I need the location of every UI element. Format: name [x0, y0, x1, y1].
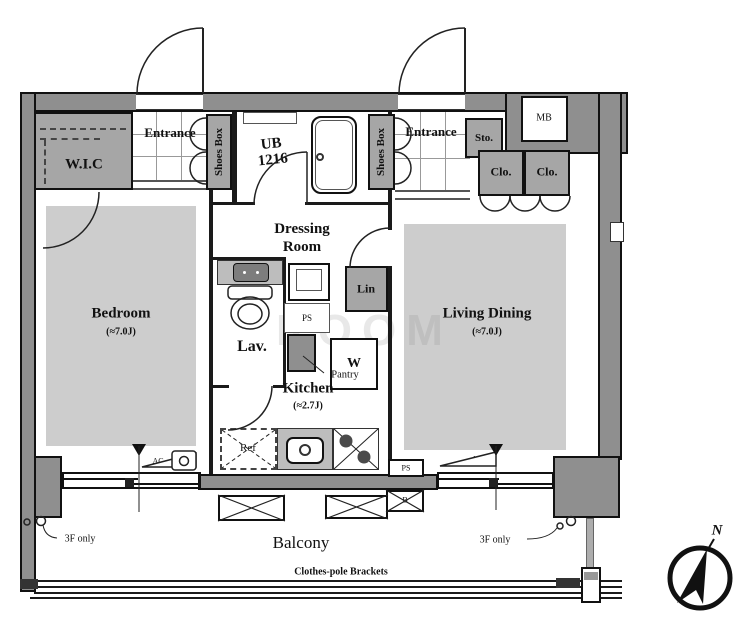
bedroom-window	[62, 472, 201, 489]
lav-basin-dot	[256, 271, 259, 274]
tile-line	[181, 112, 182, 180]
window-end	[552, 474, 554, 487]
balcony-rail	[30, 597, 622, 599]
kitchen-size: (≈2.7J)	[293, 401, 323, 412]
toilet-tank	[228, 286, 272, 299]
wic-rod-dashed-2	[40, 138, 100, 140]
entrance-left-opening	[136, 94, 203, 110]
dressing-top-wall-right	[305, 202, 392, 205]
window-end	[437, 474, 439, 487]
linen-label: Lin	[357, 282, 375, 297]
ac-right-label: AC	[471, 455, 482, 464]
rail-tick-right	[556, 578, 580, 588]
entrance-left-label: Entrance	[144, 125, 195, 141]
compass-needle	[677, 549, 707, 604]
window-overlap	[489, 478, 498, 487]
wic-rod-dashed	[40, 128, 126, 130]
lav-basin	[233, 263, 269, 282]
living-dining-label: Living Dining	[443, 306, 532, 323]
pipe-space-mid-label: PS	[302, 313, 312, 323]
pantry-box	[287, 334, 316, 372]
tile-line	[156, 112, 157, 180]
ac-left-wedge	[142, 453, 196, 467]
shoes-box-left-label: Shoes Box	[213, 128, 225, 176]
bedroom-size: (≈7.0J)	[106, 327, 136, 338]
entrance-right-label: Entrance	[405, 124, 456, 140]
floor-plan: ROOM MB W.I.C Entrance Shoes Box Shoes B…	[0, 0, 750, 634]
lav-label: Lav.	[237, 338, 267, 356]
left-wall-bump	[34, 456, 62, 518]
storage-box-label: Sto.	[475, 132, 493, 144]
ub-shelf	[243, 112, 297, 124]
rail-end-box-fill	[584, 572, 598, 580]
third-floor-right-label: 3F only	[480, 535, 511, 546]
entrance-left-step	[133, 180, 206, 182]
third-floor-right-leader	[527, 528, 557, 539]
closet-right-label: Clo.	[537, 165, 558, 180]
toilet-bowl	[231, 297, 269, 329]
balcony-unit-box	[325, 495, 388, 519]
balcony-label: Balcony	[273, 533, 330, 553]
entrance-right-opening	[398, 94, 465, 110]
tile-line	[395, 158, 470, 159]
ac-left-label: AC	[152, 457, 163, 466]
tile-line	[133, 156, 206, 157]
compass-circle	[670, 548, 730, 608]
pillar-drain-line	[586, 518, 594, 568]
closet-door-scallop	[480, 196, 510, 211]
wic-closet	[34, 112, 133, 190]
pantry-label: Pantry	[331, 370, 358, 381]
window-overlap	[125, 478, 134, 487]
bathtub-faucet	[316, 153, 324, 161]
closet-door-scallop	[540, 196, 570, 211]
lav-bottom-wall-left	[211, 385, 229, 388]
meter-box-label: MB	[536, 113, 552, 124]
dressing-room-label: Dressing Room	[252, 220, 352, 256]
living-window	[437, 472, 554, 489]
bedroom-label: Bedroom	[92, 306, 151, 323]
vanity-basin	[296, 269, 322, 291]
b-unit-label: B	[402, 496, 407, 505]
right-wall	[598, 92, 622, 460]
entrance-left-step	[133, 188, 206, 190]
shoes-box-right-bifold	[395, 152, 411, 184]
stove-box	[333, 428, 379, 470]
ub-label-block: UB 1216	[246, 134, 297, 171]
balcony-rail	[34, 580, 622, 582]
third-floor-left-label: 3F only	[65, 534, 96, 545]
entrance-right-step	[395, 198, 470, 200]
closet-door-scallop	[510, 196, 540, 211]
shoesbox-ub-wall	[232, 112, 237, 205]
ac-right-wedge	[440, 452, 496, 466]
dressing-door-arc	[350, 228, 390, 268]
entrance-left-door-arc	[137, 28, 203, 94]
compass-north-label: N	[712, 523, 723, 540]
ac-left-drain	[180, 457, 189, 466]
kitchen-label: Kitchen	[283, 381, 334, 398]
window-panel	[492, 483, 554, 485]
entrance-right-door-arc	[399, 28, 465, 94]
rail-tick-left	[20, 579, 38, 589]
lav-door-arc	[228, 386, 272, 430]
living-dining-size: (≈7.0J)	[472, 327, 502, 338]
wic-rod-dashed-vert	[44, 140, 46, 184]
entrance-right-step	[395, 190, 470, 192]
window-end	[199, 474, 201, 487]
balcony-rail	[34, 592, 622, 594]
toilet-bowl-inner	[238, 304, 262, 324]
core-left-wall	[209, 188, 213, 474]
shoes-box-right-label: Shoes Box	[375, 128, 387, 176]
clothes-pole-label: Clothes-pole Brackets	[294, 567, 388, 578]
lav-basin-dot	[243, 271, 246, 274]
dressing-line2: Room	[252, 238, 352, 256]
refrigerator-label: Ref	[240, 442, 256, 454]
core-right-wall-lower	[388, 266, 392, 474]
dressing-line1: Dressing	[252, 220, 352, 238]
third-floor-left-leader	[43, 525, 57, 538]
ac-left-box	[172, 451, 196, 470]
dressing-top-wall-left	[209, 202, 255, 205]
compass-n-tick	[707, 539, 714, 551]
balcony-rail	[34, 586, 622, 588]
pipe-space-bottom-label: PS	[402, 464, 411, 473]
balcony-unit-box	[218, 495, 285, 521]
window-panel	[128, 483, 201, 485]
sink-drain	[299, 444, 311, 456]
right-wall-notch	[610, 222, 624, 242]
closet-left-label: Clo.	[491, 165, 512, 180]
wic-label: W.I.C	[65, 157, 103, 174]
bottom-right-pillar	[553, 456, 620, 518]
hook-circle	[557, 523, 563, 529]
window-end	[62, 474, 64, 487]
